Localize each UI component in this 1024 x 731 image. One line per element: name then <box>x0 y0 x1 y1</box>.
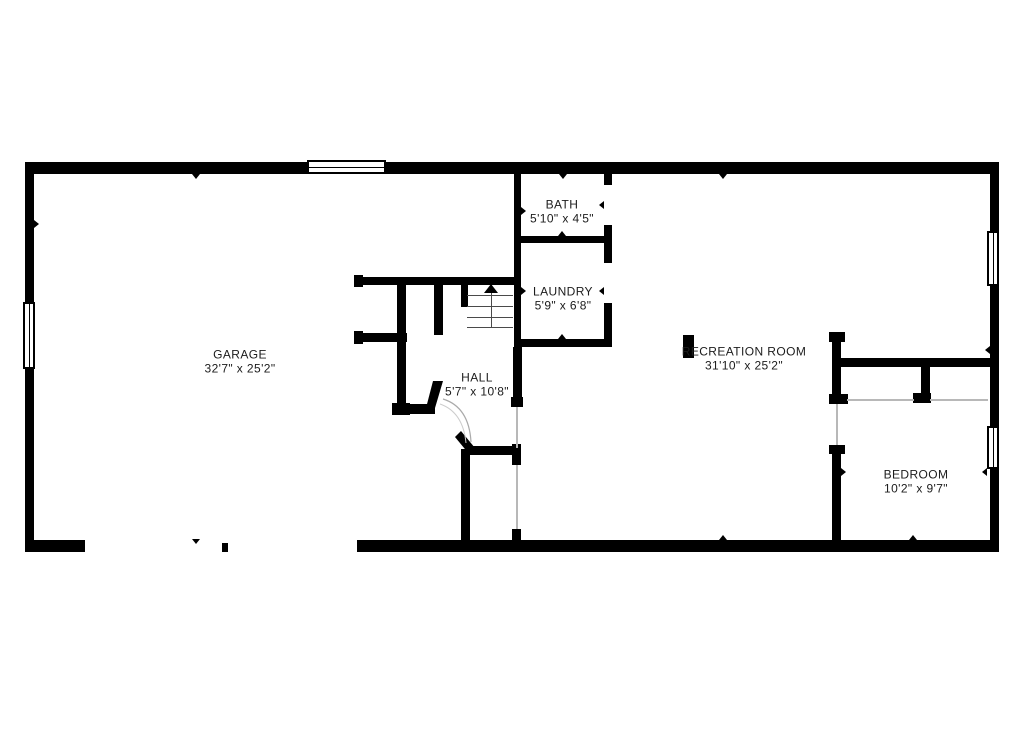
room-label-recreation-room: RECREATION ROOM31'10" x 25'2" <box>682 346 806 373</box>
wall-segment <box>604 174 612 185</box>
direction-marker <box>521 287 526 295</box>
window-pane-line <box>29 304 30 367</box>
window-pane-line <box>309 167 384 168</box>
wall-segment <box>990 162 999 552</box>
wall-segment <box>829 394 848 404</box>
wall-segment <box>514 236 612 243</box>
wall-segment <box>395 404 435 414</box>
stair-tread <box>467 327 513 328</box>
direction-marker <box>192 174 200 179</box>
room-name: BEDROOM <box>884 469 949 483</box>
direction-marker <box>599 287 604 295</box>
room-dimensions: 5'10" x 4'5" <box>530 212 594 226</box>
window <box>987 231 999 286</box>
wall-segment <box>913 393 931 403</box>
direction-marker <box>982 468 987 476</box>
door-opening-line <box>516 407 518 448</box>
window <box>23 302 35 369</box>
window-pane-line <box>993 233 994 284</box>
room-label-garage: GARAGE32'7" x 25'2" <box>204 349 275 376</box>
wall-segment <box>511 397 523 407</box>
wall-segment <box>461 449 470 552</box>
room-name: GARAGE <box>204 349 275 363</box>
direction-marker <box>841 468 846 476</box>
direction-marker <box>559 174 567 179</box>
floor-plan: GARAGE32'7" x 25'2"BATH5'10" x 4'5"LAUND… <box>0 0 1024 731</box>
direction-marker <box>521 207 526 215</box>
wall-segment <box>512 529 521 552</box>
room-label-laundry: LAUNDRY5'9" x 6'8" <box>533 286 593 313</box>
direction-marker <box>909 535 917 540</box>
room-label-bedroom: BEDROOM10'2" x 9'7" <box>884 469 949 496</box>
window-pane-line <box>993 428 994 467</box>
room-dimensions: 5'9" x 6'8" <box>533 299 593 313</box>
room-name: HALL <box>445 372 509 386</box>
direction-marker <box>558 334 566 339</box>
direction-marker <box>558 231 566 236</box>
stair-tread <box>467 317 513 318</box>
direction-marker <box>34 220 39 228</box>
wall-segment <box>357 540 999 552</box>
room-dimensions: 32'7" x 25'2" <box>204 362 275 376</box>
door-opening-line <box>836 404 838 445</box>
room-label-hall: HALL5'7" x 10'8" <box>445 372 509 399</box>
door-opening-line <box>847 399 914 401</box>
door-opening-line <box>516 465 518 529</box>
room-dimensions: 5'7" x 10'8" <box>445 385 509 399</box>
stair-up-arrow <box>484 284 498 293</box>
wall-segment <box>25 162 999 174</box>
door-opening-line <box>930 399 988 401</box>
room-label-bath: BATH5'10" x 4'5" <box>530 199 594 226</box>
room-dimensions: 10'2" x 9'7" <box>884 482 949 496</box>
room-name: RECREATION ROOM <box>682 346 806 360</box>
wall-segment <box>514 174 521 347</box>
wall-segment <box>25 540 85 552</box>
direction-marker <box>985 346 990 354</box>
window <box>987 426 999 469</box>
stair-tread <box>467 306 513 307</box>
wall-segment <box>434 285 443 335</box>
wall-segment <box>470 446 515 455</box>
direction-marker <box>599 201 604 209</box>
wall-segment <box>222 543 228 552</box>
wall-segment <box>514 339 612 347</box>
room-name: BATH <box>530 199 594 213</box>
wall-segment <box>513 347 522 397</box>
wall-segment <box>604 225 612 263</box>
room-name: LAUNDRY <box>533 286 593 300</box>
direction-marker <box>719 535 727 540</box>
room-dimensions: 31'10" x 25'2" <box>682 359 806 373</box>
direction-marker <box>719 174 727 179</box>
wall-segment <box>461 285 468 307</box>
stair-tread <box>467 295 513 296</box>
window <box>307 160 386 174</box>
direction-marker <box>192 539 200 544</box>
wall-segment <box>832 445 841 552</box>
wall-segment <box>397 285 406 405</box>
wall-segment <box>841 358 990 367</box>
